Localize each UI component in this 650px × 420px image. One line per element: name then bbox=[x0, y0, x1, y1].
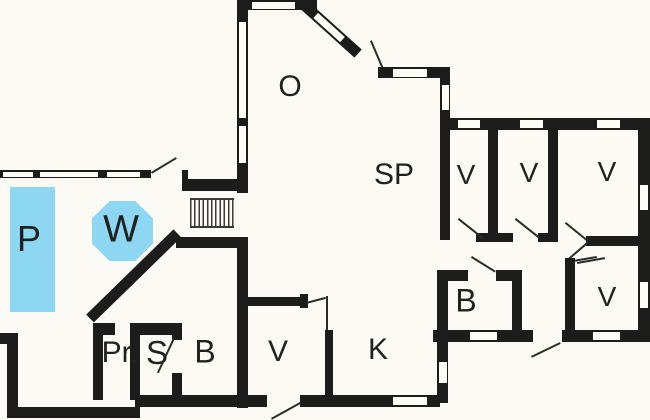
door-swing-line bbox=[458, 218, 483, 239]
room-label-bedroom3: V bbox=[598, 156, 617, 188]
window bbox=[239, 126, 246, 163]
room-label-dining: SP bbox=[374, 158, 414, 192]
room-label-bedroom1: V bbox=[457, 159, 476, 191]
window bbox=[597, 120, 620, 128]
wall bbox=[237, 237, 248, 408]
door-swing-line bbox=[271, 402, 301, 420]
door-swing-line bbox=[306, 297, 325, 304]
room-label-living: O bbox=[278, 70, 301, 104]
window bbox=[393, 397, 427, 405]
wall bbox=[302, 2, 362, 58]
room-label-sauna: S bbox=[146, 334, 168, 372]
window bbox=[640, 282, 648, 308]
door-swing-line bbox=[326, 296, 328, 330]
wall bbox=[548, 130, 558, 242]
door-swing-line bbox=[565, 222, 588, 241]
window bbox=[239, 22, 246, 118]
door-swing-line bbox=[515, 218, 540, 239]
window bbox=[313, 13, 344, 42]
window bbox=[458, 120, 480, 128]
wall bbox=[488, 130, 498, 242]
wall bbox=[565, 258, 575, 338]
floor-plan: P W O SP V V V V B K V Pr. S B bbox=[0, 0, 650, 420]
window bbox=[393, 69, 427, 77]
wall bbox=[135, 395, 267, 407]
door-swing-line bbox=[531, 342, 561, 358]
wall bbox=[586, 236, 650, 246]
window bbox=[520, 120, 543, 128]
window bbox=[640, 185, 648, 210]
window bbox=[40, 172, 98, 177]
room-label-kitchen: K bbox=[368, 333, 388, 367]
room-label-bath-left: B bbox=[194, 334, 215, 371]
door-swing-line bbox=[370, 40, 384, 69]
room-label-whirlpool: W bbox=[103, 209, 139, 252]
wall bbox=[247, 297, 302, 306]
window bbox=[3, 172, 33, 177]
stairs bbox=[190, 198, 234, 228]
wall bbox=[7, 333, 18, 418]
room-label-bedroom4: V bbox=[598, 281, 617, 313]
room-label-bedroom2: V bbox=[520, 157, 539, 189]
door-swing-line bbox=[471, 256, 496, 273]
room-label-bath-right: B bbox=[455, 283, 476, 320]
window bbox=[442, 85, 449, 110]
window bbox=[107, 172, 140, 177]
window bbox=[439, 362, 447, 383]
wall bbox=[325, 330, 333, 397]
room-label-entry: V bbox=[268, 335, 288, 369]
room-label-pool: P bbox=[17, 218, 41, 260]
wall bbox=[538, 233, 558, 242]
wall bbox=[7, 407, 140, 418]
window bbox=[252, 2, 295, 9]
window bbox=[593, 332, 620, 340]
wall bbox=[172, 373, 182, 398]
window bbox=[470, 332, 497, 340]
room-label-pr: Pr. bbox=[102, 336, 139, 370]
door-swing-line bbox=[151, 157, 177, 174]
